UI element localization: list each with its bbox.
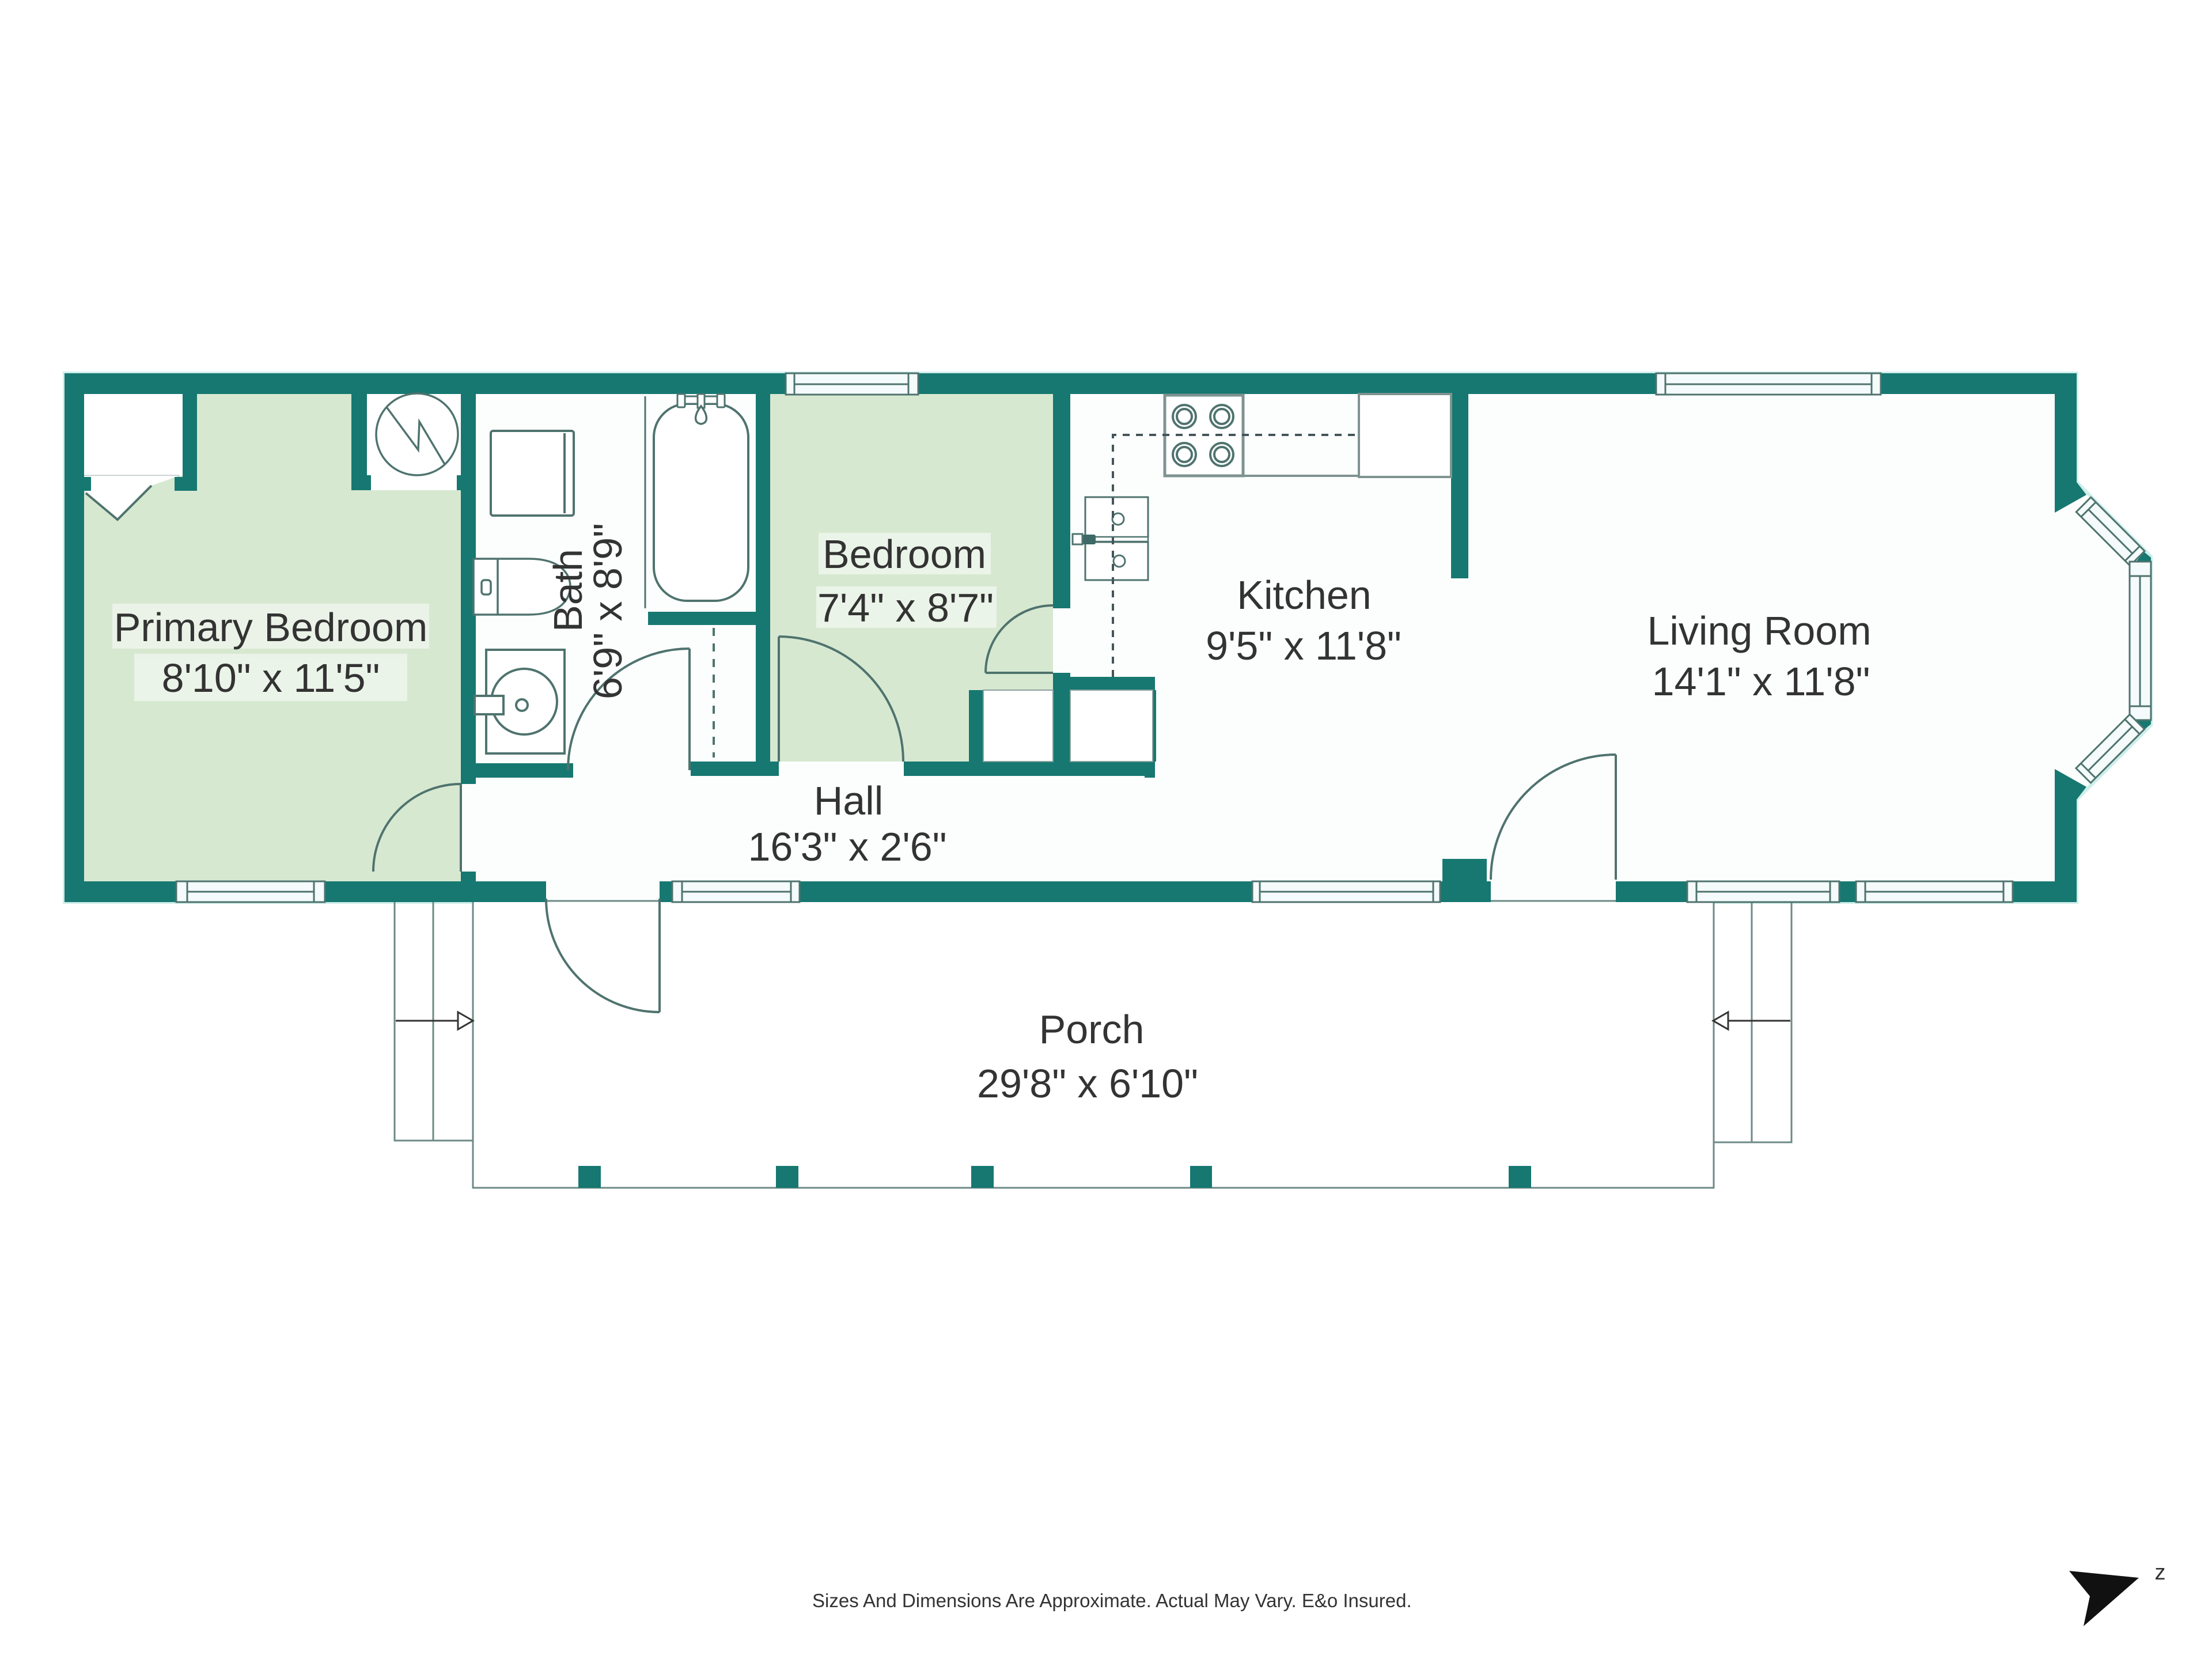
svg-text:Porch: Porch <box>1039 1007 1145 1052</box>
svg-text:9'5" x 11'8": 9'5" x 11'8" <box>1206 623 1402 668</box>
svg-text:Living Room: Living Room <box>1647 608 1871 653</box>
svg-text:8'10" x 11'5": 8'10" x 11'5" <box>162 656 380 700</box>
svg-text:Hall: Hall <box>814 778 884 823</box>
svg-text:Sizes And Dimensions Are Appro: Sizes And Dimensions Are Approximate. Ac… <box>812 1590 1412 1611</box>
svg-text:Bath: Bath <box>546 549 590 632</box>
svg-text:14'1" x 11'8": 14'1" x 11'8" <box>1652 659 1870 704</box>
svg-text:Bedroom: Bedroom <box>823 532 986 577</box>
svg-text:16'3" x 2'6": 16'3" x 2'6" <box>748 824 947 869</box>
svg-text:z: z <box>2155 1560 2166 1585</box>
svg-text:Primary Bedroom: Primary Bedroom <box>114 605 428 650</box>
svg-text:29'8" x 6'10": 29'8" x 6'10" <box>977 1061 1198 1106</box>
svg-text:Kitchen: Kitchen <box>1237 573 1371 618</box>
svg-text:6'9" x 8'9": 6'9" x 8'9" <box>585 523 630 699</box>
svg-text:7'4" x 8'7": 7'4" x 8'7" <box>817 585 994 630</box>
